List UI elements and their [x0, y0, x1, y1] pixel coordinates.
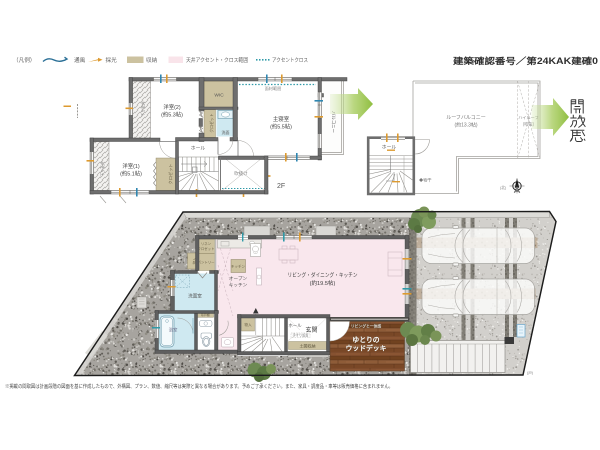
svg-text:(約5.1帖): (約5.1帖)	[120, 170, 142, 178]
svg-text:ホール: ホール	[191, 146, 206, 152]
svg-text:（凡例）: （凡例）	[13, 56, 35, 64]
svg-text:バルコニー: バルコニー	[331, 111, 336, 133]
svg-text:洗面: 洗面	[222, 129, 230, 135]
svg-text:手すり設置: 手すり設置	[293, 333, 309, 338]
svg-text:※掲載の間取図は計画段階の図面を基に作成したもので、外構図、: ※掲載の間取図は計画段階の図面を基に作成したもので、外構図、プラン、数値、縮尺等…	[5, 383, 393, 390]
svg-text:リネン: リネン	[201, 241, 212, 246]
svg-text:土間収納: 土間収納	[300, 342, 316, 348]
svg-text:2F: 2F	[277, 183, 285, 190]
svg-text:(約5.3帖): (約5.3帖)	[161, 111, 183, 119]
svg-text:物入: 物入	[244, 322, 252, 327]
svg-text:キッチン: キッチン	[229, 283, 248, 288]
svg-text:◆物干: ◆物干	[419, 177, 432, 184]
svg-text:リビングと一体感: リビングと一体感	[351, 324, 382, 329]
svg-text:主寝室: 主寝室	[273, 115, 290, 123]
svg-text:面材範囲: 面材範囲	[265, 85, 282, 92]
svg-text:建築確認番号／第24KAK建確0: 建築確認番号／第24KAK建確0	[452, 55, 598, 66]
svg-text:洋室(2): 洋室(2)	[163, 103, 181, 111]
svg-text:リビング・ダイニング・キッチン: リビング・ダイニング・キッチン	[288, 271, 358, 279]
svg-text:下り天井: 下り天井	[100, 161, 105, 177]
svg-text:(約13.3帖): (約13.3帖)	[454, 122, 477, 129]
svg-text:キッチン: キッチン	[231, 264, 246, 269]
svg-text:洗面室: 洗面室	[188, 293, 202, 300]
svg-text:ホール: ホール	[288, 323, 302, 328]
svg-text:(約19.5帖): (約19.5帖)	[310, 279, 336, 287]
svg-text:天井アクセント・クロス範囲: 天井アクセント・クロス範囲	[186, 56, 248, 64]
svg-text:浴室: 浴室	[169, 327, 178, 334]
svg-text:アクセントクロス: アクセントクロス	[272, 57, 308, 64]
svg-text:(戸): (戸)	[527, 370, 533, 375]
svg-text:ルーフバルコニー: ルーフバルコニー	[446, 115, 486, 121]
svg-text:クロゼット: クロゼット	[209, 113, 214, 133]
svg-text:クロゼット: クロゼット	[167, 164, 174, 185]
svg-text:WIC: WIC	[214, 93, 224, 99]
svg-text:採光: 採光	[106, 56, 118, 64]
svg-text:通風: 通風	[74, 56, 86, 64]
svg-text:下り天井: 下り天井	[141, 101, 146, 117]
svg-text:(約5.5帖): (約5.5帖)	[270, 123, 292, 131]
svg-text:クロゼット: クロゼット	[198, 246, 215, 251]
svg-text:収納: 収納	[146, 56, 158, 64]
svg-text:ウッドデッキ: ウッドデッキ	[346, 344, 387, 353]
svg-text:パントリー: パントリー	[197, 260, 215, 265]
svg-text:ゆとりの: ゆとりの	[352, 335, 379, 344]
svg-text:洋室(1): 洋室(1)	[122, 162, 140, 170]
svg-text:(北): (北)	[500, 185, 507, 190]
svg-text:吹抜け: 吹抜け	[234, 170, 248, 177]
